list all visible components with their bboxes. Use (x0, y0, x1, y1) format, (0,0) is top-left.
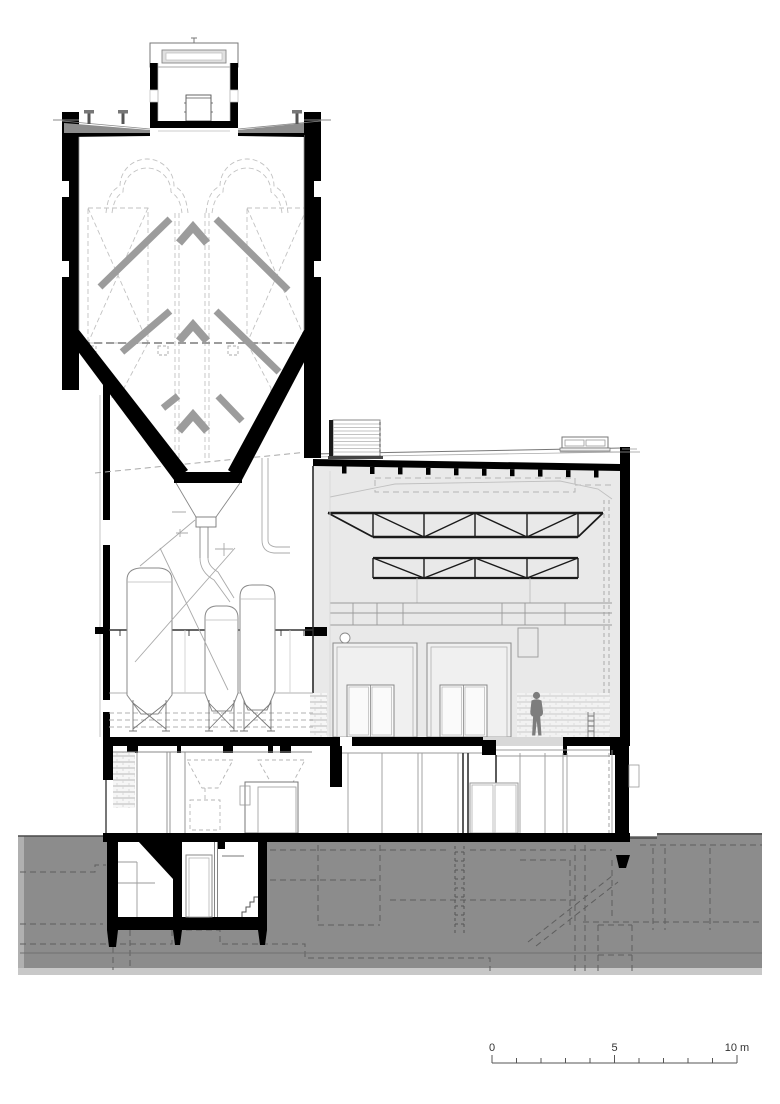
basement-ceiling-tab (218, 841, 225, 849)
equipment-box (245, 782, 298, 833)
wall-fixture-circle (340, 633, 350, 643)
penthouse-window-left (150, 90, 158, 102)
facade-reveal-r2 (314, 261, 321, 277)
conveyor-dashed (95, 452, 308, 473)
portal-left (333, 643, 417, 737)
section-drawing: 0 5 10 m (0, 0, 780, 1104)
architectural-section-sheet: 0 5 10 m (0, 0, 780, 1104)
scale-label-start: 0 (489, 1042, 495, 1054)
main-hall (305, 420, 640, 746)
basement-door (186, 855, 212, 917)
tank-3 (240, 585, 275, 710)
tank-2 (205, 606, 238, 711)
hall-left-wall (103, 374, 110, 737)
basement-floor-slab (107, 917, 267, 930)
facade-bracket (95, 627, 103, 634)
facade-reveal-r1 (314, 181, 321, 197)
facade-reveal-l1 (62, 181, 69, 197)
hopper-chord (174, 472, 242, 483)
gf-double-door (470, 783, 518, 833)
scale-bar-ticks (492, 1055, 737, 1063)
tank-1 (127, 568, 172, 714)
portal-right (427, 643, 511, 737)
rooftop-vent (560, 437, 610, 451)
roof-line-right (238, 133, 304, 137)
column-stubs (103, 740, 615, 787)
facade-reveal-l2 (62, 261, 69, 277)
brick-strip (113, 752, 135, 808)
hall-right-wall (620, 447, 630, 746)
wall-window-gap-2 (103, 700, 110, 712)
silo-tower (53, 38, 331, 558)
penthouse (150, 38, 238, 131)
exterior-box (629, 765, 639, 787)
hoist-door (186, 95, 211, 121)
ground-slab (103, 833, 630, 842)
basement-wall-mid (173, 833, 182, 930)
roof-tick (191, 38, 197, 43)
ground-earth-mass (18, 833, 762, 975)
rooftop-louver-unit (328, 420, 383, 459)
material-chutes (100, 219, 288, 421)
discharge-funnel (176, 483, 240, 558)
scale-label-end: 10 m (725, 1042, 749, 1054)
brick-wall (517, 693, 610, 737)
ground-floor (103, 737, 639, 842)
basement-wall-right (258, 833, 267, 930)
basement-wall-left (107, 833, 118, 930)
flow-arrows (179, 227, 207, 431)
tower-wall-right (304, 112, 321, 458)
wall-window-gap-1 (103, 520, 110, 545)
slab-gap-small (340, 737, 352, 746)
penthouse-floor (150, 121, 238, 128)
brick-pier (310, 693, 327, 737)
tanks (127, 568, 275, 714)
walkway-beam (305, 627, 327, 636)
earth-bottom-band (18, 968, 762, 975)
fixture-marks (86, 346, 306, 355)
scale-label-mid: 5 (611, 1042, 617, 1054)
gf-right-wall (615, 746, 629, 833)
penthouse-window-right (230, 90, 238, 102)
scale-bar: 0 5 10 m (489, 1042, 749, 1063)
plinth-dashed-lines (109, 713, 313, 727)
roof-line-left (64, 133, 150, 137)
